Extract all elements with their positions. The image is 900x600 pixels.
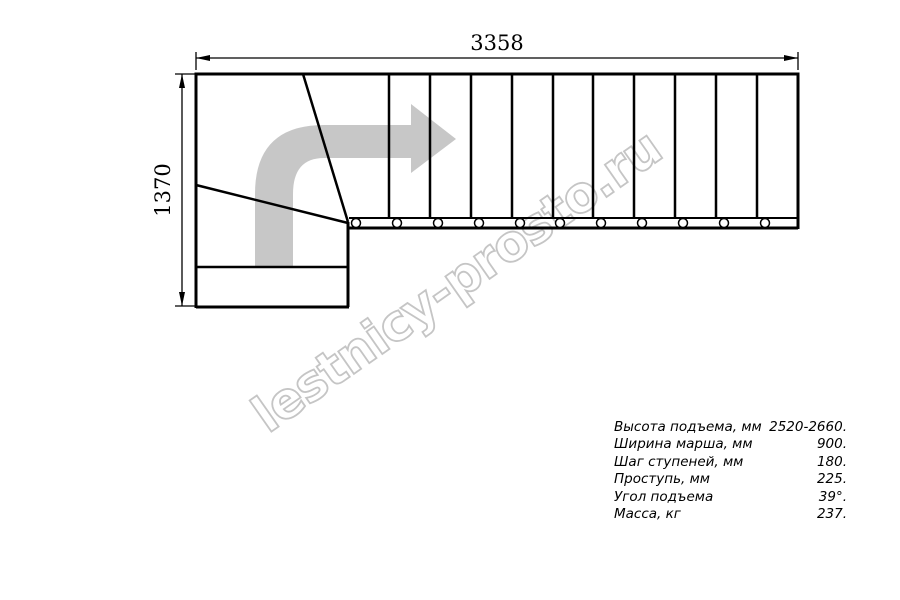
- spec-row-tread: Проступь, мм 225.: [614, 471, 847, 488]
- spec-row-rise-angle: Угол подъема 39°.: [614, 489, 847, 506]
- spec-label: Шаг ступеней, мм: [614, 454, 743, 471]
- spec-label: Масса, кг: [614, 506, 681, 523]
- baluster-circle: [597, 219, 606, 228]
- specs-table: Высота подъема, мм 2520-2660. Ширина мар…: [614, 419, 847, 523]
- dimension-width: 3358: [196, 31, 798, 70]
- baluster-circle: [679, 219, 688, 228]
- spec-row-mass: Масса, кг 237.: [614, 506, 847, 523]
- spec-row-step-pitch: Шаг ступеней, мм 180.: [614, 454, 847, 471]
- dim-arrow-right: [784, 55, 798, 61]
- watermark-text: lestnicy-prosto.ru: [242, 118, 672, 443]
- spec-row-flight-width: Ширина марша, мм 900.: [614, 436, 847, 453]
- spec-value: 180.: [817, 454, 847, 471]
- dim-arrow-up: [179, 74, 185, 88]
- spec-value: 225.: [817, 471, 847, 488]
- spec-row-rise-height: Высота подъема, мм 2520-2660.: [614, 419, 847, 436]
- baluster-circle: [556, 219, 565, 228]
- direction-arrow: [255, 104, 456, 267]
- baluster-circle: [393, 219, 402, 228]
- spec-label: Угол подъема: [614, 489, 713, 506]
- baluster-circle: [352, 219, 361, 228]
- baluster-circle: [720, 219, 729, 228]
- baluster-circle: [516, 219, 525, 228]
- baluster-circle: [475, 219, 484, 228]
- spec-value: 900.: [817, 436, 847, 453]
- dim-arrow-left: [196, 55, 210, 61]
- spec-value: 2520-2660.: [769, 419, 847, 436]
- drawing-canvas: lestnicy-prosto.ru: [0, 0, 900, 600]
- dimension-height: 1370: [151, 74, 196, 306]
- baluster-circle: [761, 219, 770, 228]
- baluster-circle: [434, 219, 443, 228]
- baluster-circles: [352, 219, 770, 228]
- dim-height-label: 1370: [151, 163, 175, 216]
- spec-label: Высота подъема, мм: [614, 419, 762, 436]
- spec-value: 237.: [817, 506, 847, 523]
- spec-label: Проступь, мм: [614, 471, 710, 488]
- spec-value: 39°.: [819, 489, 847, 506]
- spec-label: Ширина марша, мм: [614, 436, 753, 453]
- dim-width-label: 3358: [470, 31, 523, 55]
- baluster-circle: [638, 219, 647, 228]
- dim-arrow-down: [179, 292, 185, 306]
